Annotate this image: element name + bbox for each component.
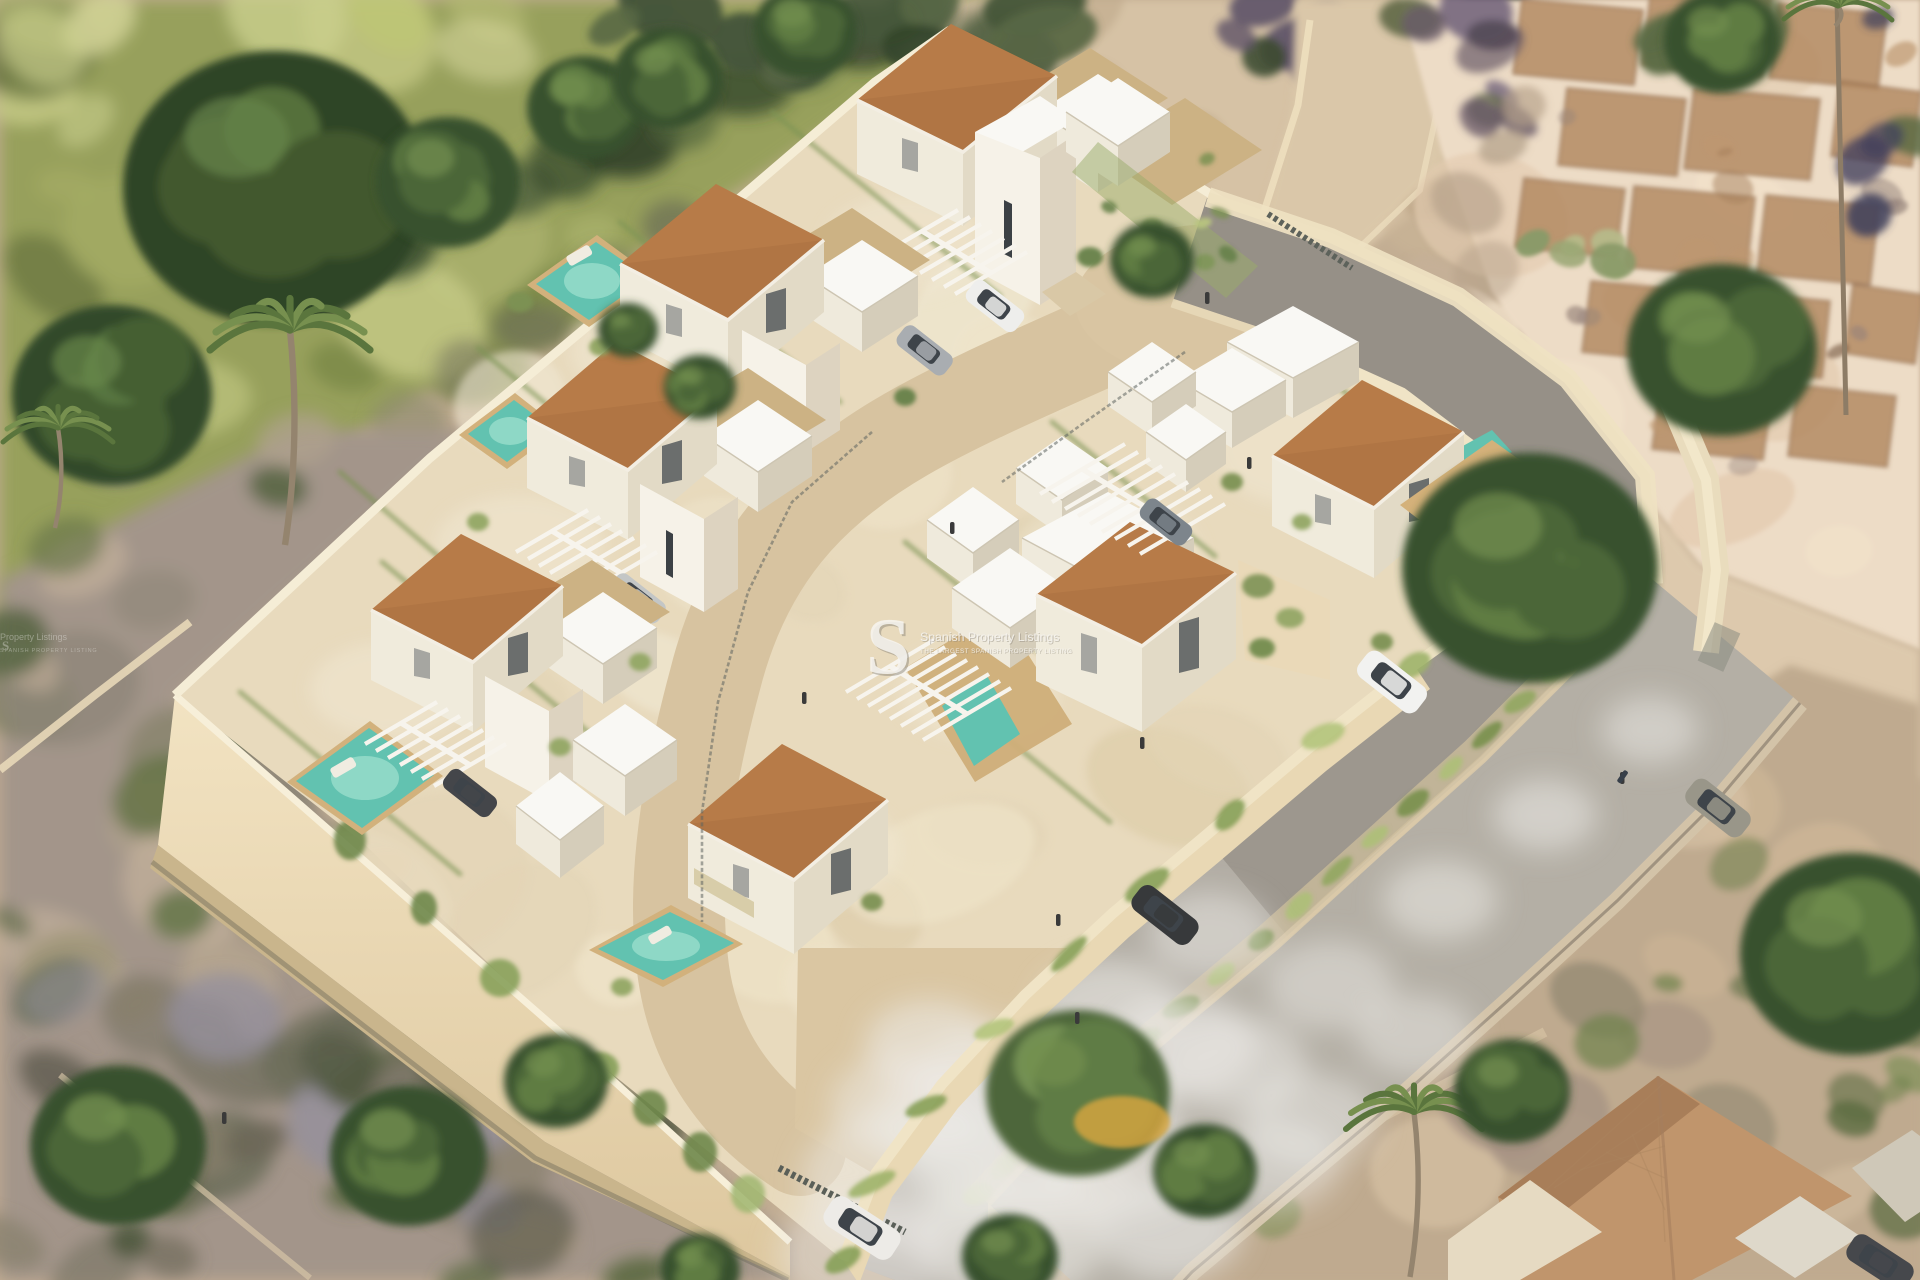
svg-text:THE LARGEST SPANISH PROPERTY L: THE LARGEST SPANISH PROPERTY LISTING [920, 648, 1072, 655]
svg-text:S: S [866, 603, 911, 691]
svg-text:Property Listings: Property Listings [0, 632, 68, 642]
svg-text:Spanish Property Listings: Spanish Property Listings [920, 630, 1059, 644]
svg-text:SPANISH PROPERTY LISTING: SPANISH PROPERTY LISTING [0, 648, 97, 654]
